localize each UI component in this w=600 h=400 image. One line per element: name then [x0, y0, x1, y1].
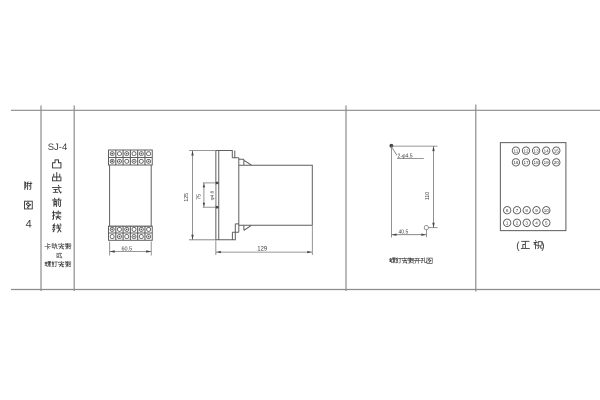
svg-text:10: 10 [544, 208, 550, 213]
svg-text:6: 6 [506, 208, 509, 213]
svg-text:SJ-4: SJ-4 [48, 142, 68, 153]
svg-text:5: 5 [545, 221, 548, 226]
svg-text:20: 20 [554, 160, 560, 165]
svg-text:4: 4 [26, 218, 32, 230]
svg-text:2-φ4.5: 2-φ4.5 [398, 154, 413, 160]
svg-text:8: 8 [525, 208, 528, 213]
svg-text:60.5: 60.5 [121, 246, 132, 252]
svg-text:11: 11 [514, 148, 519, 153]
svg-text:15: 15 [554, 148, 560, 153]
svg-text:2: 2 [516, 221, 519, 226]
svg-text:3: 3 [525, 221, 528, 226]
svg-text:16: 16 [513, 160, 519, 165]
svg-text:): ) [541, 241, 544, 252]
svg-text:12: 12 [523, 148, 529, 153]
svg-text:17: 17 [523, 160, 529, 165]
svg-text:7: 7 [516, 208, 519, 213]
svg-text:19: 19 [544, 160, 550, 165]
svg-text:1: 1 [506, 221, 509, 226]
svg-text:40.5: 40.5 [399, 229, 409, 235]
svg-text:75: 75 [196, 194, 202, 200]
svg-text:4: 4 [535, 221, 538, 226]
svg-text:125: 125 [184, 193, 190, 202]
svg-text:129: 129 [257, 247, 268, 253]
svg-text:14: 14 [544, 148, 550, 153]
svg-text:φ4.8: φ4.8 [210, 190, 215, 200]
svg-text:9: 9 [535, 208, 538, 213]
svg-text:13: 13 [534, 148, 540, 153]
svg-text:110: 110 [425, 192, 431, 200]
svg-text:(: ( [516, 241, 520, 252]
svg-text:18: 18 [534, 160, 540, 165]
